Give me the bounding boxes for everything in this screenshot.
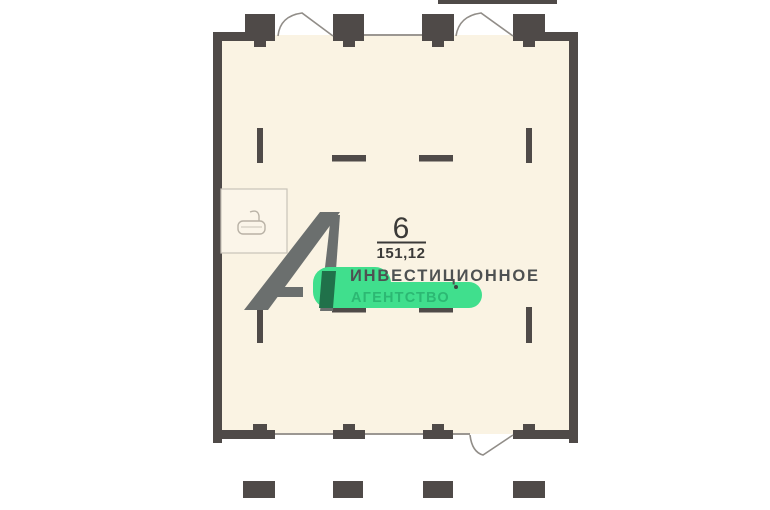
wall-top-left-segment bbox=[213, 32, 246, 41]
room-area: 151,12 bbox=[377, 245, 426, 262]
stub-right-bottom bbox=[526, 307, 532, 343]
pier-top-4 bbox=[513, 14, 545, 41]
watermark-line1: ИНВЕСТИЦИОННОЕ bbox=[350, 267, 540, 285]
pier-bottom-2 bbox=[333, 430, 365, 439]
wall-bottom-left-segment bbox=[213, 430, 275, 439]
stub-mid-top-1 bbox=[332, 155, 366, 162]
pier-tab bbox=[253, 424, 267, 430]
pier-tab bbox=[254, 41, 266, 47]
wall-foot-right bbox=[569, 430, 578, 443]
pier-top-3 bbox=[422, 14, 454, 41]
neighbor-wall-fragment bbox=[438, 0, 557, 4]
stub-left-top bbox=[257, 128, 263, 163]
wall-top-right-segment bbox=[545, 32, 578, 41]
outside-pier-2 bbox=[333, 481, 363, 498]
pier-tab bbox=[432, 41, 444, 47]
pier-tab bbox=[343, 424, 355, 430]
outside-piers bbox=[243, 481, 545, 498]
door-arc-bottom bbox=[470, 435, 513, 455]
door-arc-top-2 bbox=[456, 13, 513, 36]
pier-bottom-3 bbox=[423, 430, 453, 439]
outside-pier-4 bbox=[513, 481, 545, 498]
pier-tab bbox=[343, 41, 355, 47]
pier-tab bbox=[432, 424, 444, 430]
wall-bottom-right-segment bbox=[513, 430, 578, 439]
watermark-line2: АГЕНТСТВО bbox=[351, 290, 450, 306]
outside-pier-1 bbox=[243, 481, 275, 498]
stub-right-top bbox=[526, 128, 532, 163]
pier-tab bbox=[523, 41, 535, 47]
watermark-dot bbox=[454, 285, 458, 289]
room-number: 6 bbox=[393, 212, 410, 245]
floor-plan-image: 6 151,12 ИНВЕСТИЦИОННОЕ АГЕНТСТВО bbox=[0, 0, 770, 510]
wall-foot-left bbox=[213, 430, 222, 443]
wall-right bbox=[569, 32, 578, 443]
pier-tab bbox=[523, 424, 535, 430]
pier-top-2 bbox=[333, 14, 364, 41]
stub-left-bottom bbox=[257, 307, 263, 343]
outside-pier-3 bbox=[423, 481, 453, 498]
door-arc-top-1 bbox=[278, 13, 333, 36]
bathroom bbox=[221, 189, 287, 253]
pier-top-1 bbox=[245, 14, 275, 41]
stub-mid-top-2 bbox=[419, 155, 453, 162]
floor-plan-svg: 6 151,12 ИНВЕСТИЦИОННОЕ АГЕНТСТВО bbox=[0, 0, 770, 510]
